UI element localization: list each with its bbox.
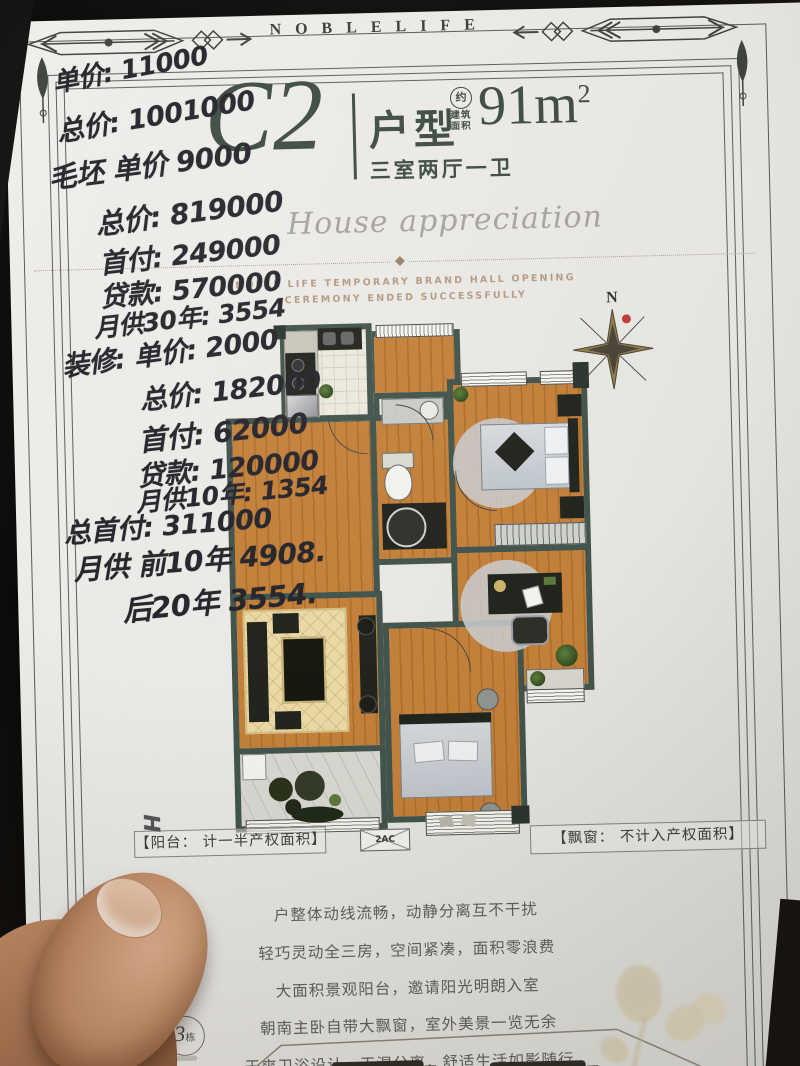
rooms-label: 三室两厅一卫 [369, 152, 514, 186]
side-bay-window [526, 688, 584, 703]
handwriting-note: H [138, 814, 163, 833]
unit-type-label: 户型 [368, 95, 459, 157]
ac-label: 2AC [375, 835, 395, 845]
area-value: 91m2 [478, 76, 592, 135]
second-bed [399, 712, 493, 798]
balcony-stool [242, 754, 267, 781]
corner-ornament-right [729, 38, 757, 109]
sink-basin [323, 332, 336, 345]
ac-unit-box: 2AC [360, 828, 411, 851]
area-sup: 2 [577, 79, 591, 108]
master-wardrobe [494, 522, 587, 546]
area-number: 91m [477, 73, 578, 137]
divider-diamond-icon: ◆ [391, 252, 409, 270]
area-unit-bottom: 面积 [451, 121, 472, 132]
wall-pier [572, 362, 589, 388]
frame-ornament-right [512, 10, 739, 50]
pillow [413, 740, 445, 763]
photo-canvas: NOBLELIFE [0, 0, 800, 1066]
armchair [273, 613, 299, 634]
sink-basin [341, 332, 354, 345]
wall-pier [511, 805, 529, 823]
area-unit-label: 建筑 面积 [450, 111, 472, 133]
sofa [247, 622, 269, 722]
nightstand [560, 496, 585, 519]
desk-chair [511, 615, 550, 646]
desk-pad [544, 577, 556, 585]
compass-north-label: N [567, 288, 657, 308]
toilet-icon [384, 464, 413, 501]
armchair [275, 711, 301, 730]
master-window-1 [461, 371, 527, 387]
pillow [545, 456, 570, 485]
bay-decor [461, 814, 477, 827]
nightstand [557, 394, 582, 417]
entry-window [376, 323, 454, 338]
headboard [568, 418, 580, 492]
bay-window-note: 【飘窗： 不计入产权面积】 [530, 820, 767, 855]
pillow [544, 426, 569, 455]
pillow [448, 741, 479, 762]
coffee-table [281, 636, 327, 703]
